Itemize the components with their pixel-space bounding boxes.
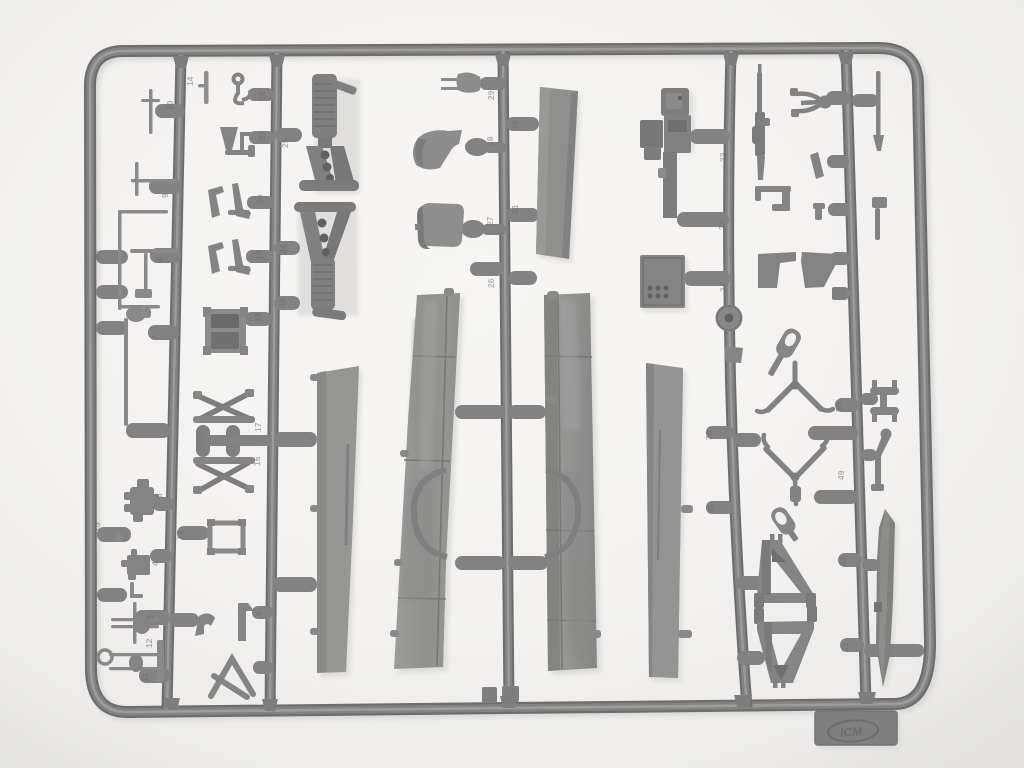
svg-text:11: 11 bbox=[140, 673, 150, 682]
svg-text:52: 52 bbox=[838, 556, 848, 566]
svg-text:24: 24 bbox=[278, 244, 288, 254]
svg-text:32: 32 bbox=[717, 220, 727, 230]
svg-text:19: 19 bbox=[254, 250, 264, 260]
svg-text:28: 28 bbox=[485, 136, 495, 146]
svg-text:9: 9 bbox=[160, 193, 170, 198]
svg-text:55: 55 bbox=[92, 250, 102, 260]
svg-text:29: 29 bbox=[486, 90, 496, 100]
svg-text:3: 3 bbox=[92, 593, 102, 598]
svg-text:35: 35 bbox=[706, 504, 716, 514]
svg-text:51: 51 bbox=[840, 642, 850, 652]
svg-text:14: 14 bbox=[185, 76, 195, 86]
svg-text:4: 4 bbox=[150, 561, 160, 566]
svg-text:13: 13 bbox=[175, 530, 185, 540]
svg-text:27: 27 bbox=[485, 216, 495, 226]
svg-text:15: 15 bbox=[92, 522, 102, 532]
svg-text:50: 50 bbox=[834, 402, 844, 412]
svg-text:30: 30 bbox=[510, 120, 520, 130]
svg-text:25: 25 bbox=[280, 138, 290, 148]
svg-text:6: 6 bbox=[154, 493, 164, 498]
svg-text:22: 22 bbox=[257, 91, 267, 101]
svg-text:20: 20 bbox=[255, 194, 265, 204]
svg-text:49: 49 bbox=[836, 470, 846, 480]
svg-text:2: 2 bbox=[145, 615, 155, 620]
svg-text:31: 31 bbox=[510, 204, 520, 214]
svg-text:17: 17 bbox=[253, 422, 263, 432]
svg-text:8: 8 bbox=[155, 258, 165, 263]
svg-text:16: 16 bbox=[252, 456, 262, 466]
svg-text:ICM: ICM bbox=[840, 724, 864, 740]
svg-text:5: 5 bbox=[254, 611, 264, 616]
svg-text:26: 26 bbox=[486, 278, 496, 288]
svg-text:21: 21 bbox=[257, 130, 267, 140]
svg-text:7: 7 bbox=[150, 335, 160, 340]
svg-text:12: 12 bbox=[144, 638, 154, 648]
svg-text:23: 23 bbox=[277, 298, 287, 308]
svg-text:18: 18 bbox=[253, 312, 263, 322]
svg-text:33: 33 bbox=[718, 152, 728, 162]
svg-text:10: 10 bbox=[165, 100, 175, 110]
svg-text:34: 34 bbox=[718, 282, 728, 292]
svg-text:36: 36 bbox=[704, 430, 714, 440]
